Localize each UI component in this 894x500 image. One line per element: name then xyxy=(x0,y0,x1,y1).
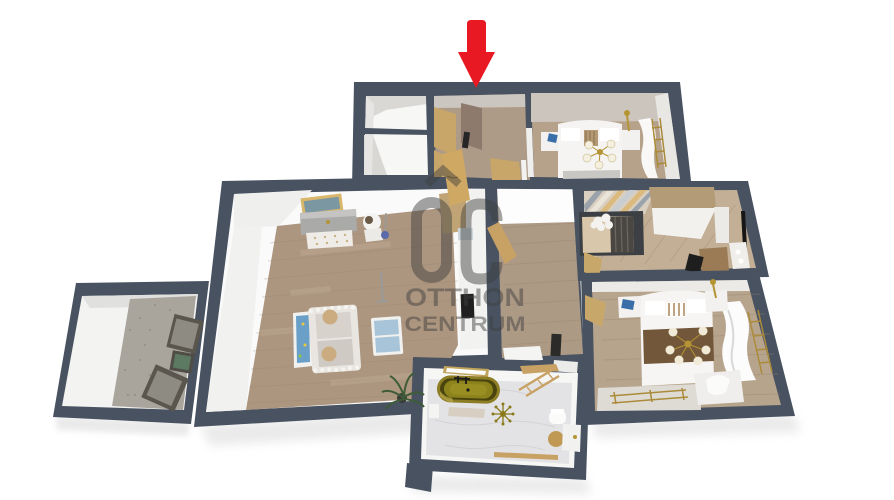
svg-text:OTTHON: OTTHON xyxy=(405,284,525,312)
svg-text:CENTRUM: CENTRUM xyxy=(405,313,526,336)
